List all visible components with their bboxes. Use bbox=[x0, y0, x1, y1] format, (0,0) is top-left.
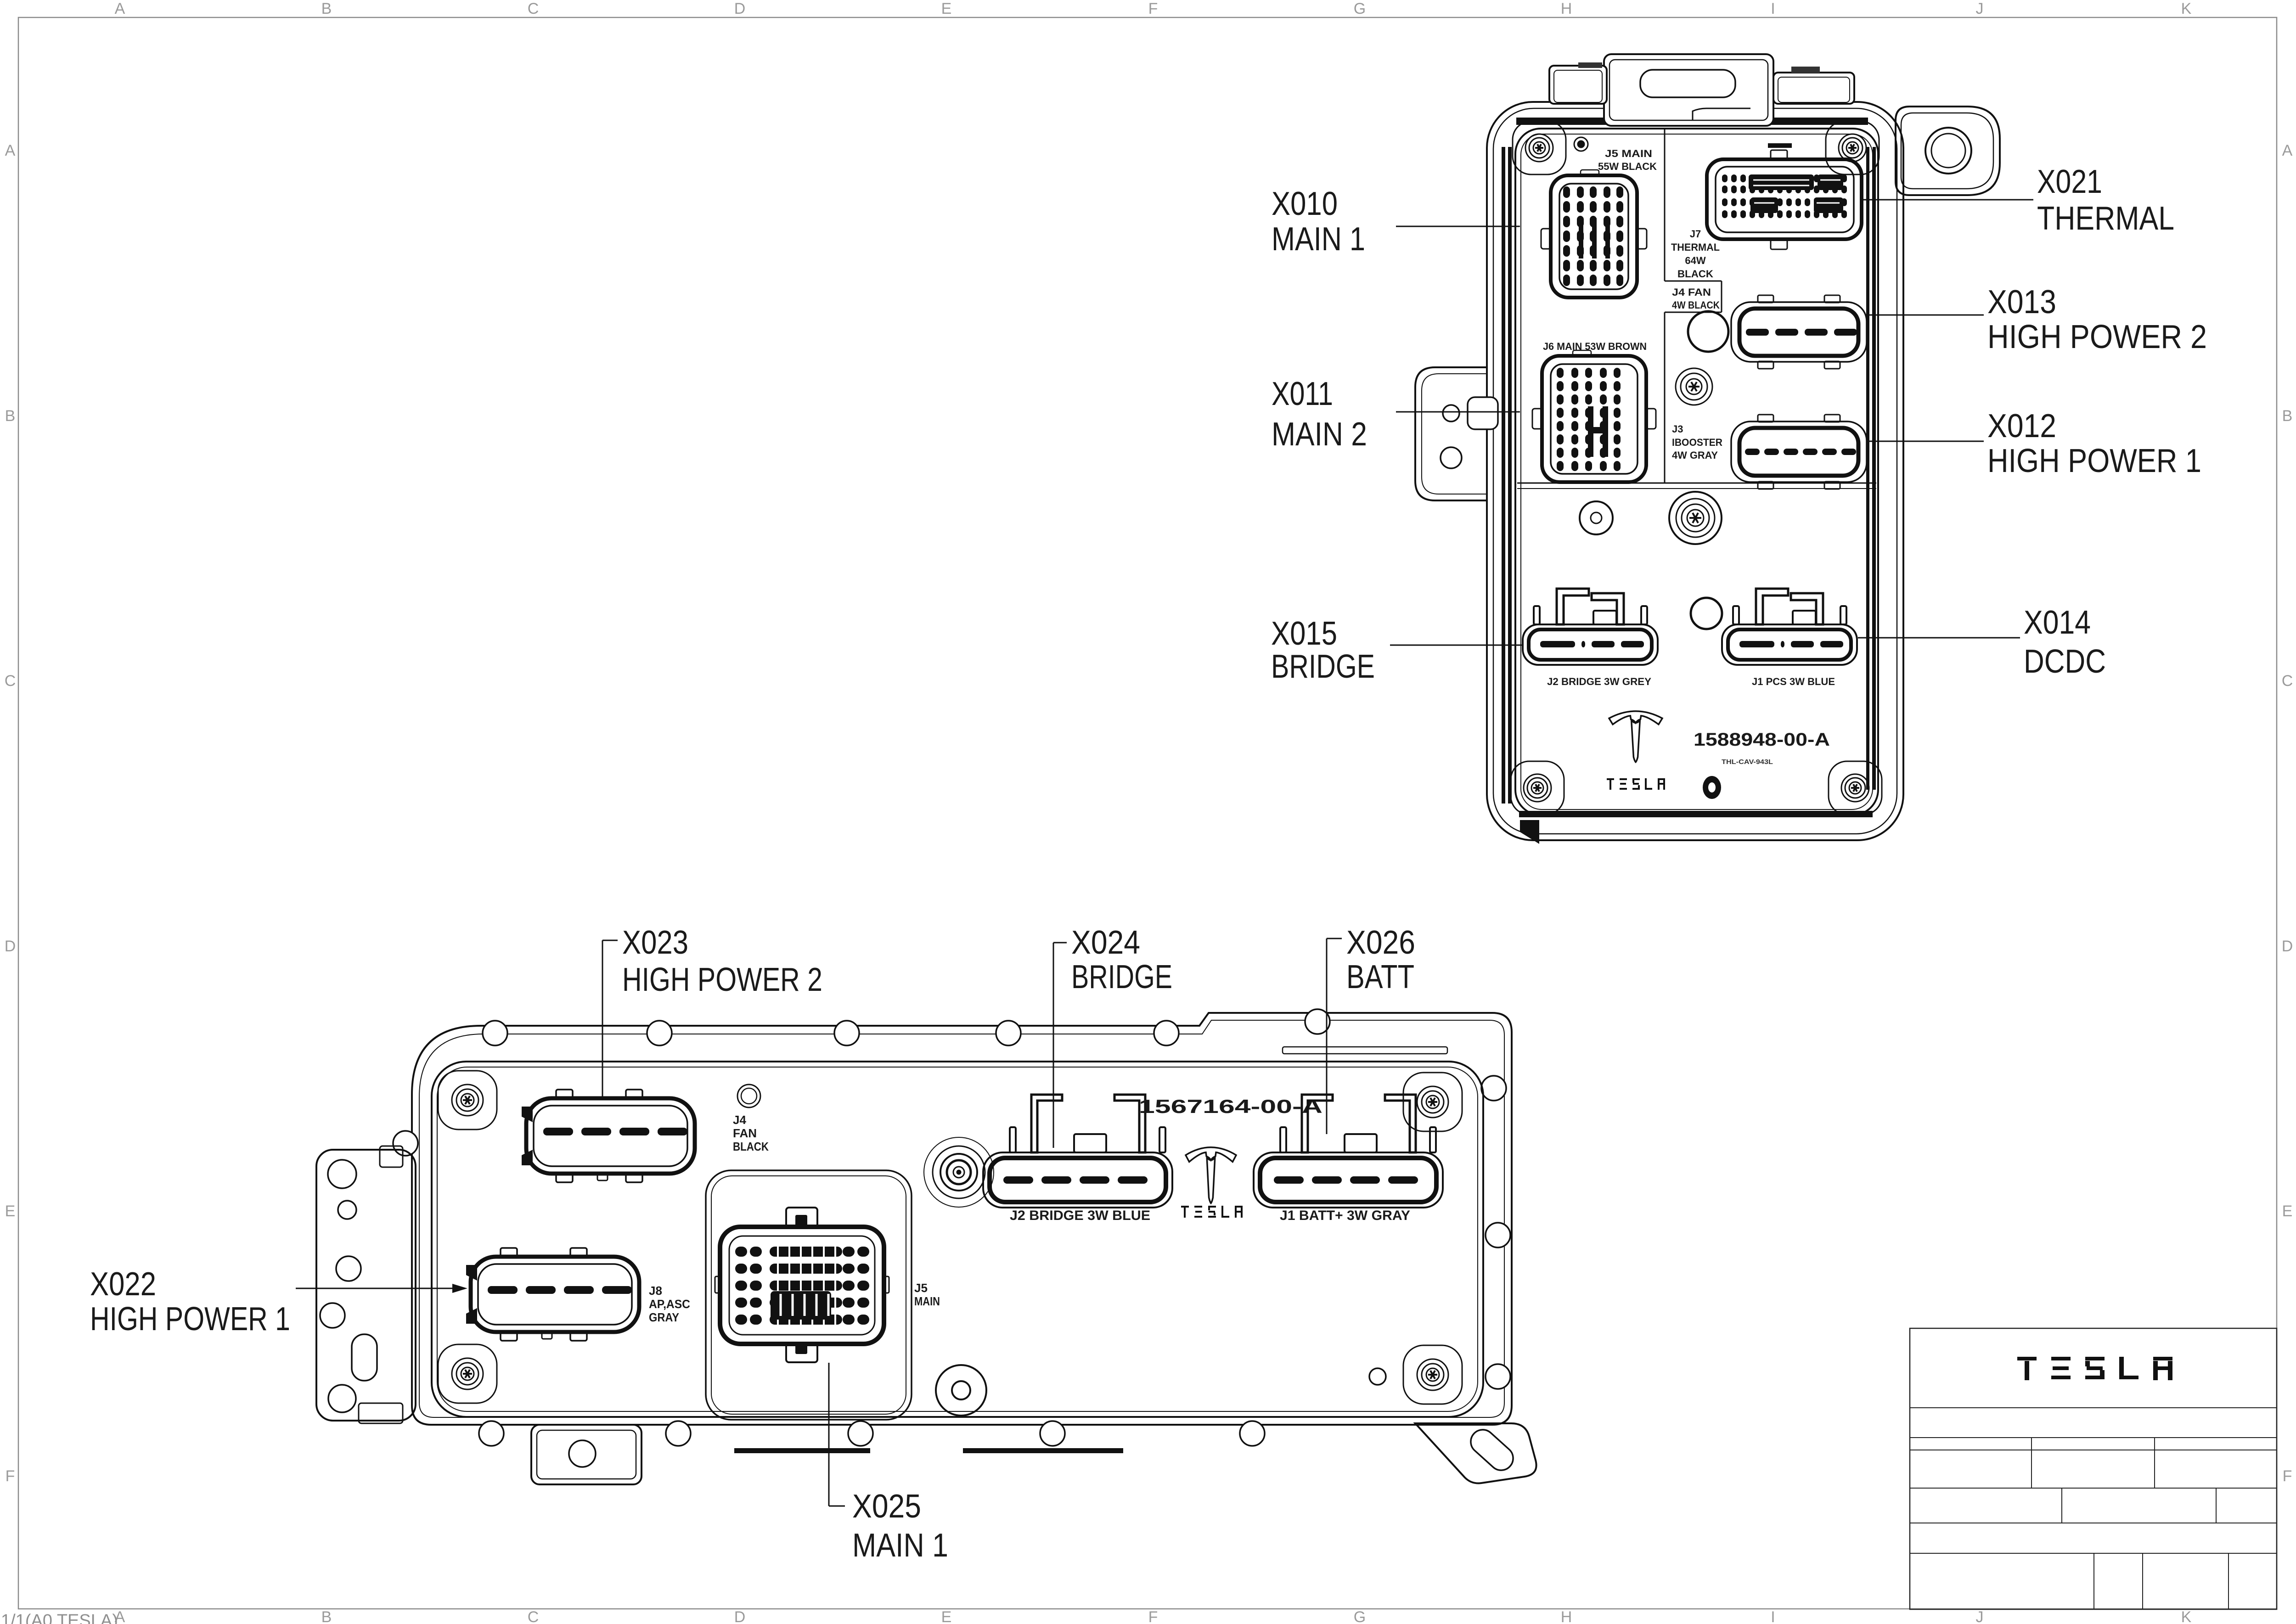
svg-text:B: B bbox=[321, 1608, 332, 1624]
svg-text:MAIN 1: MAIN 1 bbox=[852, 1527, 948, 1564]
svg-text:X015: X015 bbox=[1271, 615, 1337, 652]
svg-text:MAIN 1: MAIN 1 bbox=[1272, 221, 1365, 258]
svg-text:K: K bbox=[2181, 1608, 2192, 1624]
svg-text:C: C bbox=[5, 672, 16, 690]
svg-text:J8: J8 bbox=[649, 1284, 662, 1298]
svg-text:X021: X021 bbox=[2037, 163, 2102, 200]
svg-text:1588948-00-A: 1588948-00-A bbox=[1694, 730, 1830, 750]
svg-text:D: D bbox=[734, 0, 746, 17]
svg-text:BLACK: BLACK bbox=[733, 1140, 769, 1153]
svg-text:BATT: BATT bbox=[1346, 959, 1414, 995]
svg-text:D: D bbox=[5, 938, 16, 955]
svg-text:THERMAL: THERMAL bbox=[1671, 242, 1720, 253]
svg-text:I: I bbox=[1771, 1608, 1775, 1624]
svg-text:H: H bbox=[1561, 1608, 1572, 1624]
svg-text:J2 BRIDGE 3W BLUE: J2 BRIDGE 3W BLUE bbox=[1010, 1208, 1150, 1223]
svg-text:D: D bbox=[734, 1608, 746, 1624]
svg-text:HIGH POWER 2: HIGH POWER 2 bbox=[622, 961, 822, 998]
svg-text:BLACK: BLACK bbox=[1677, 268, 1713, 280]
svg-text:J: J bbox=[1976, 0, 1984, 17]
svg-text:FAN: FAN bbox=[733, 1126, 757, 1140]
svg-text:IBOOSTER: IBOOSTER bbox=[1672, 437, 1722, 448]
svg-text:4W BLACK: 4W BLACK bbox=[1672, 299, 1720, 311]
svg-text:X011: X011 bbox=[1272, 376, 1333, 412]
svg-text:MAIN: MAIN bbox=[914, 1294, 940, 1308]
svg-text:J3: J3 bbox=[1672, 423, 1683, 435]
svg-text:F: F bbox=[1148, 1608, 1158, 1624]
svg-text:X013: X013 bbox=[1987, 284, 2056, 320]
svg-text:X014: X014 bbox=[2024, 604, 2091, 641]
svg-text:F: F bbox=[6, 1467, 15, 1485]
svg-text:A: A bbox=[115, 0, 125, 17]
svg-text:HIGH POWER 1: HIGH POWER 1 bbox=[1987, 443, 2201, 479]
svg-text:B: B bbox=[5, 407, 16, 425]
svg-text:C: C bbox=[2282, 672, 2293, 690]
svg-text:J4 FAN: J4 FAN bbox=[1672, 287, 1711, 298]
svg-text:AP,ASC: AP,ASC bbox=[649, 1297, 690, 1311]
svg-text:B: B bbox=[321, 0, 332, 17]
svg-text:1567164-00-A: 1567164-00-A bbox=[1139, 1096, 1322, 1117]
svg-text:C: C bbox=[528, 1608, 539, 1624]
svg-text:J7: J7 bbox=[1690, 228, 1701, 240]
svg-text:X025: X025 bbox=[852, 1488, 921, 1525]
svg-text:E: E bbox=[941, 0, 952, 17]
svg-text:I: I bbox=[1771, 0, 1775, 17]
svg-text:GRAY: GRAY bbox=[649, 1310, 679, 1324]
svg-text:BRIDGE: BRIDGE bbox=[1271, 648, 1375, 685]
svg-text:X010: X010 bbox=[1272, 185, 1338, 222]
svg-text:MAIN 2: MAIN 2 bbox=[1272, 416, 1367, 453]
svg-text:4W GRAY: 4W GRAY bbox=[1672, 450, 1718, 461]
svg-text:C: C bbox=[528, 0, 539, 17]
svg-text:K: K bbox=[2181, 0, 2192, 17]
svg-text:H: H bbox=[1561, 0, 1572, 17]
svg-text:1/1(A0 TESLA): 1/1(A0 TESLA) bbox=[1, 1611, 118, 1624]
svg-text:DCDC: DCDC bbox=[2024, 643, 2106, 680]
svg-text:J1 PCS 3W BLUE: J1 PCS 3W BLUE bbox=[1752, 676, 1835, 687]
svg-text:E: E bbox=[2282, 1203, 2293, 1220]
svg-text:THERMAL: THERMAL bbox=[2037, 200, 2174, 237]
svg-text:J1 BATT+ 3W GRAY: J1 BATT+ 3W GRAY bbox=[1280, 1208, 1410, 1223]
svg-text:J5: J5 bbox=[914, 1281, 928, 1295]
svg-text:X012: X012 bbox=[1987, 408, 2056, 444]
svg-text:G: G bbox=[1354, 0, 1366, 17]
svg-text:64W: 64W bbox=[1685, 255, 1705, 266]
svg-text:X026: X026 bbox=[1346, 924, 1415, 961]
svg-text:X023: X023 bbox=[622, 924, 688, 961]
svg-text:A: A bbox=[5, 142, 16, 159]
svg-text:J4: J4 bbox=[733, 1113, 746, 1127]
svg-text:A: A bbox=[2282, 142, 2293, 159]
svg-text:X022: X022 bbox=[90, 1266, 156, 1303]
svg-text:J: J bbox=[1976, 1608, 1984, 1624]
svg-text:J6 MAIN 53W BROWN: J6 MAIN 53W BROWN bbox=[1543, 341, 1647, 352]
svg-text:BRIDGE: BRIDGE bbox=[1071, 959, 1172, 995]
svg-text:HIGH POWER 1: HIGH POWER 1 bbox=[90, 1301, 290, 1337]
svg-text:B: B bbox=[2282, 407, 2293, 425]
svg-text:X024: X024 bbox=[1071, 924, 1140, 961]
svg-text:THL-CAV-943L: THL-CAV-943L bbox=[1722, 758, 1773, 766]
svg-text:E: E bbox=[941, 1608, 952, 1624]
svg-text:F: F bbox=[2283, 1467, 2292, 1485]
svg-text:E: E bbox=[5, 1203, 16, 1220]
svg-text:J2 BRIDGE 3W GREY: J2 BRIDGE 3W GREY bbox=[1547, 676, 1651, 687]
svg-text:F: F bbox=[1148, 0, 1158, 17]
svg-text:D: D bbox=[2282, 938, 2293, 955]
svg-text:HIGH POWER 2: HIGH POWER 2 bbox=[1987, 319, 2207, 355]
svg-text:55W BLACK: 55W BLACK bbox=[1598, 161, 1657, 172]
svg-text:G: G bbox=[1354, 1608, 1366, 1624]
svg-text:J5 MAIN: J5 MAIN bbox=[1605, 148, 1652, 159]
